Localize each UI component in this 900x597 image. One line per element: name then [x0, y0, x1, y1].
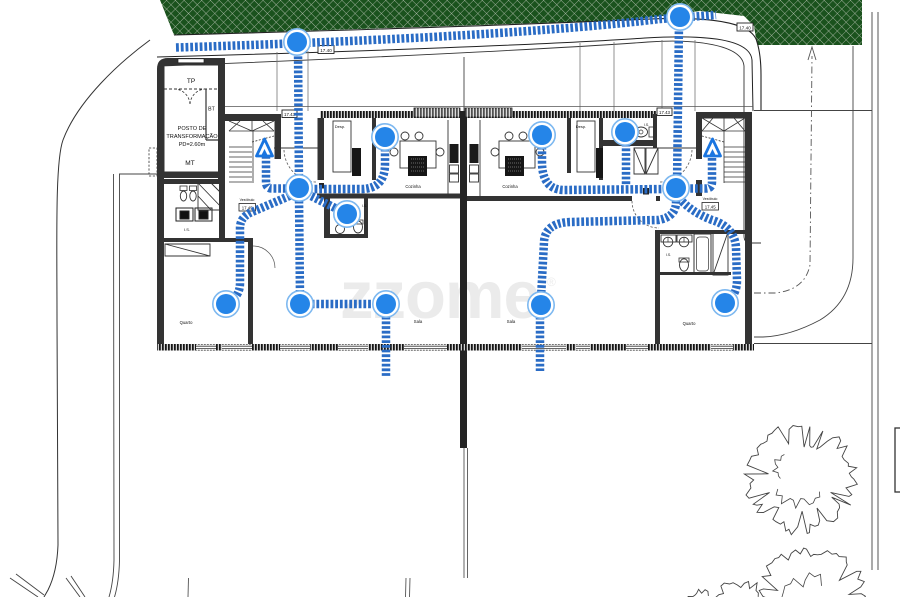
svg-text:Quarto: Quarto [683, 321, 696, 326]
svg-text:I.S.: I.S. [184, 227, 190, 232]
svg-text:Sala: Sala [414, 319, 423, 324]
svg-text:Cozinha: Cozinha [405, 184, 421, 189]
svg-text:Vestíbulo: Vestíbulo [240, 198, 255, 202]
svg-text:17.43: 17.43 [659, 110, 671, 115]
svg-text:®: ® [547, 275, 556, 289]
svg-text:17.40: 17.40 [739, 25, 751, 30]
svg-text:I.S.: I.S. [666, 253, 671, 257]
svg-text:I.S.: I.S. [362, 204, 367, 208]
svg-text:17.40: 17.40 [320, 48, 332, 53]
svg-text:Vestíbulo: Vestíbulo [703, 197, 718, 201]
svg-text:BT: BT [208, 107, 215, 113]
svg-text:PD=2.60m: PD=2.60m [179, 142, 206, 148]
svg-text:Cozinha: Cozinha [502, 184, 518, 189]
svg-text:POSTO DE: POSTO DE [178, 126, 207, 132]
svg-text:Sala: Sala [507, 319, 516, 324]
svg-text:17.45: 17.45 [705, 205, 717, 210]
svg-text:I.S.: I.S. [644, 123, 649, 127]
svg-text:MT: MT [185, 160, 194, 167]
svg-text:Desp.: Desp. [576, 124, 586, 129]
svg-text:Quarto: Quarto [180, 320, 193, 325]
svg-text:Desp.: Desp. [335, 124, 345, 129]
svg-text:TP: TP [187, 78, 195, 85]
svg-text:17.43: 17.43 [284, 112, 296, 117]
svg-text:TRANSFORMAÇÃO: TRANSFORMAÇÃO [166, 133, 218, 140]
